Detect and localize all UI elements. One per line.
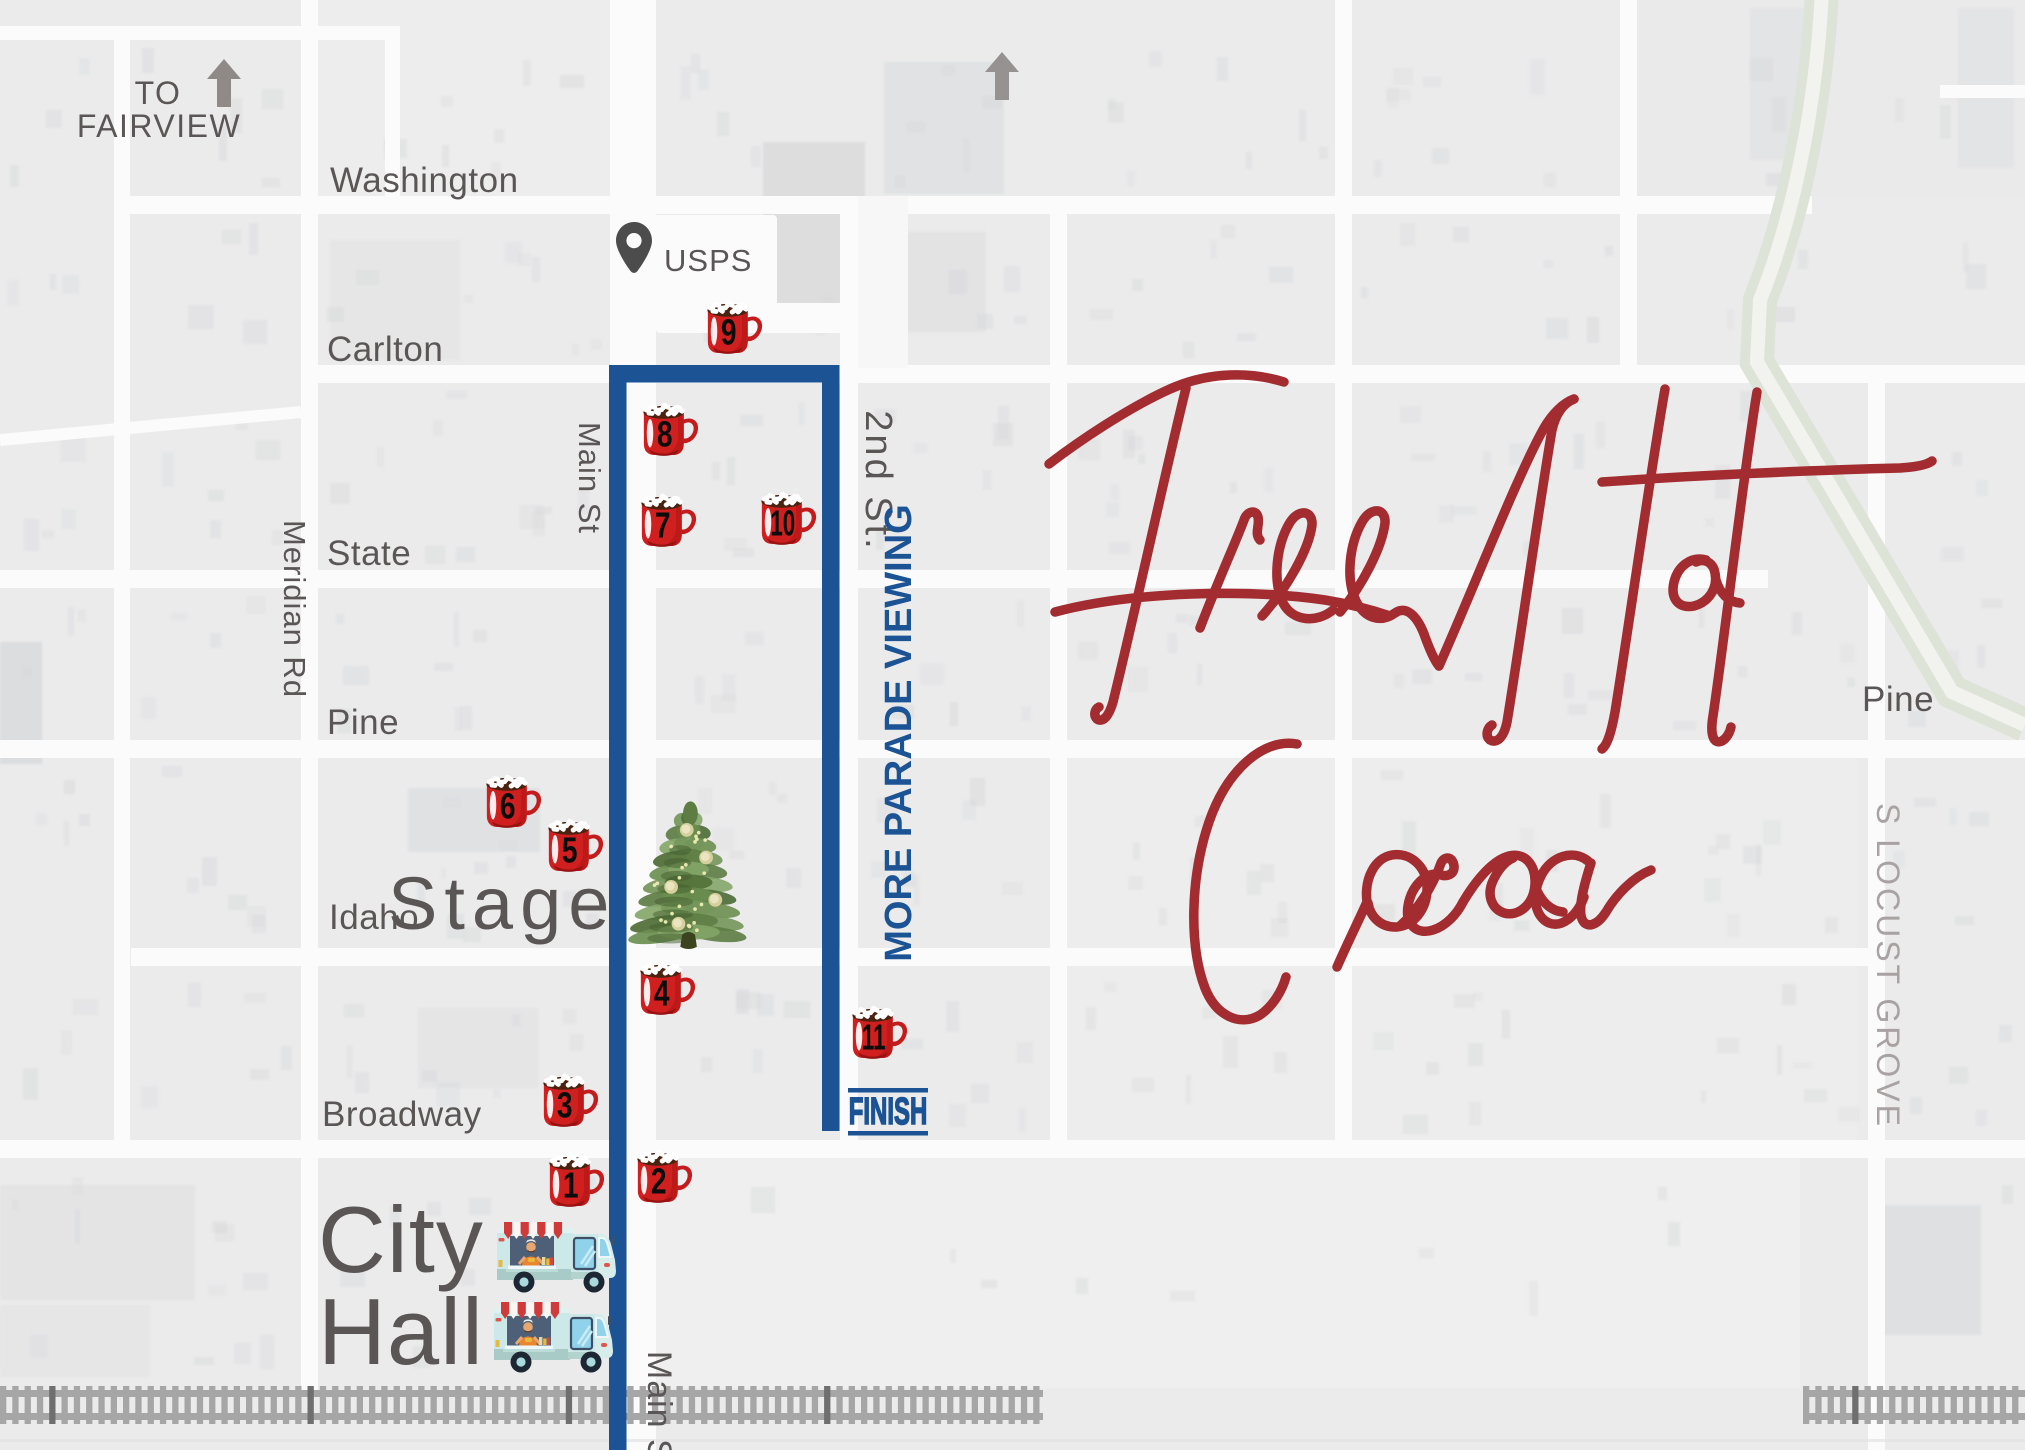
svg-text:8: 8 (657, 414, 673, 454)
svg-text:Meridian Rd: Meridian Rd (277, 520, 312, 698)
svg-text:1: 1 (563, 1165, 579, 1205)
svg-text:10: 10 (770, 504, 795, 544)
svg-text:5: 5 (562, 830, 578, 870)
svg-text:USPS: USPS (664, 243, 752, 278)
svg-text:9: 9 (721, 312, 737, 352)
svg-text:2: 2 (651, 1161, 667, 1201)
svg-text:Washington: Washington (330, 161, 519, 200)
svg-text:11: 11 (862, 1018, 886, 1058)
svg-text:MORE PARADE VIEWING: MORE PARADE VIEWING (878, 504, 920, 961)
svg-text:Carlton: Carlton (327, 330, 443, 369)
svg-text:State: State (327, 534, 411, 573)
svg-text:Hall: Hall (318, 1279, 484, 1384)
svg-text:S LOCUST GROVE: S LOCUST GROVE (1870, 803, 1906, 1129)
svg-text:TO: TO (135, 75, 182, 111)
svg-text:3: 3 (557, 1085, 573, 1125)
svg-text:Pine: Pine (327, 703, 399, 742)
svg-text:Broadway: Broadway (322, 1095, 482, 1134)
svg-text:FAIRVIEW: FAIRVIEW (77, 108, 241, 144)
svg-text:6: 6 (500, 786, 516, 826)
svg-text:Pine: Pine (1862, 680, 1934, 719)
svg-text:City: City (318, 1187, 484, 1292)
svg-text:Stage: Stage (388, 862, 616, 945)
svg-text:Main St: Main St (640, 1351, 678, 1450)
svg-text:FINISH: FINISH (849, 1089, 927, 1132)
svg-text:4: 4 (654, 973, 670, 1013)
svg-text:7: 7 (655, 505, 671, 545)
svg-text:Main St: Main St (572, 422, 607, 534)
